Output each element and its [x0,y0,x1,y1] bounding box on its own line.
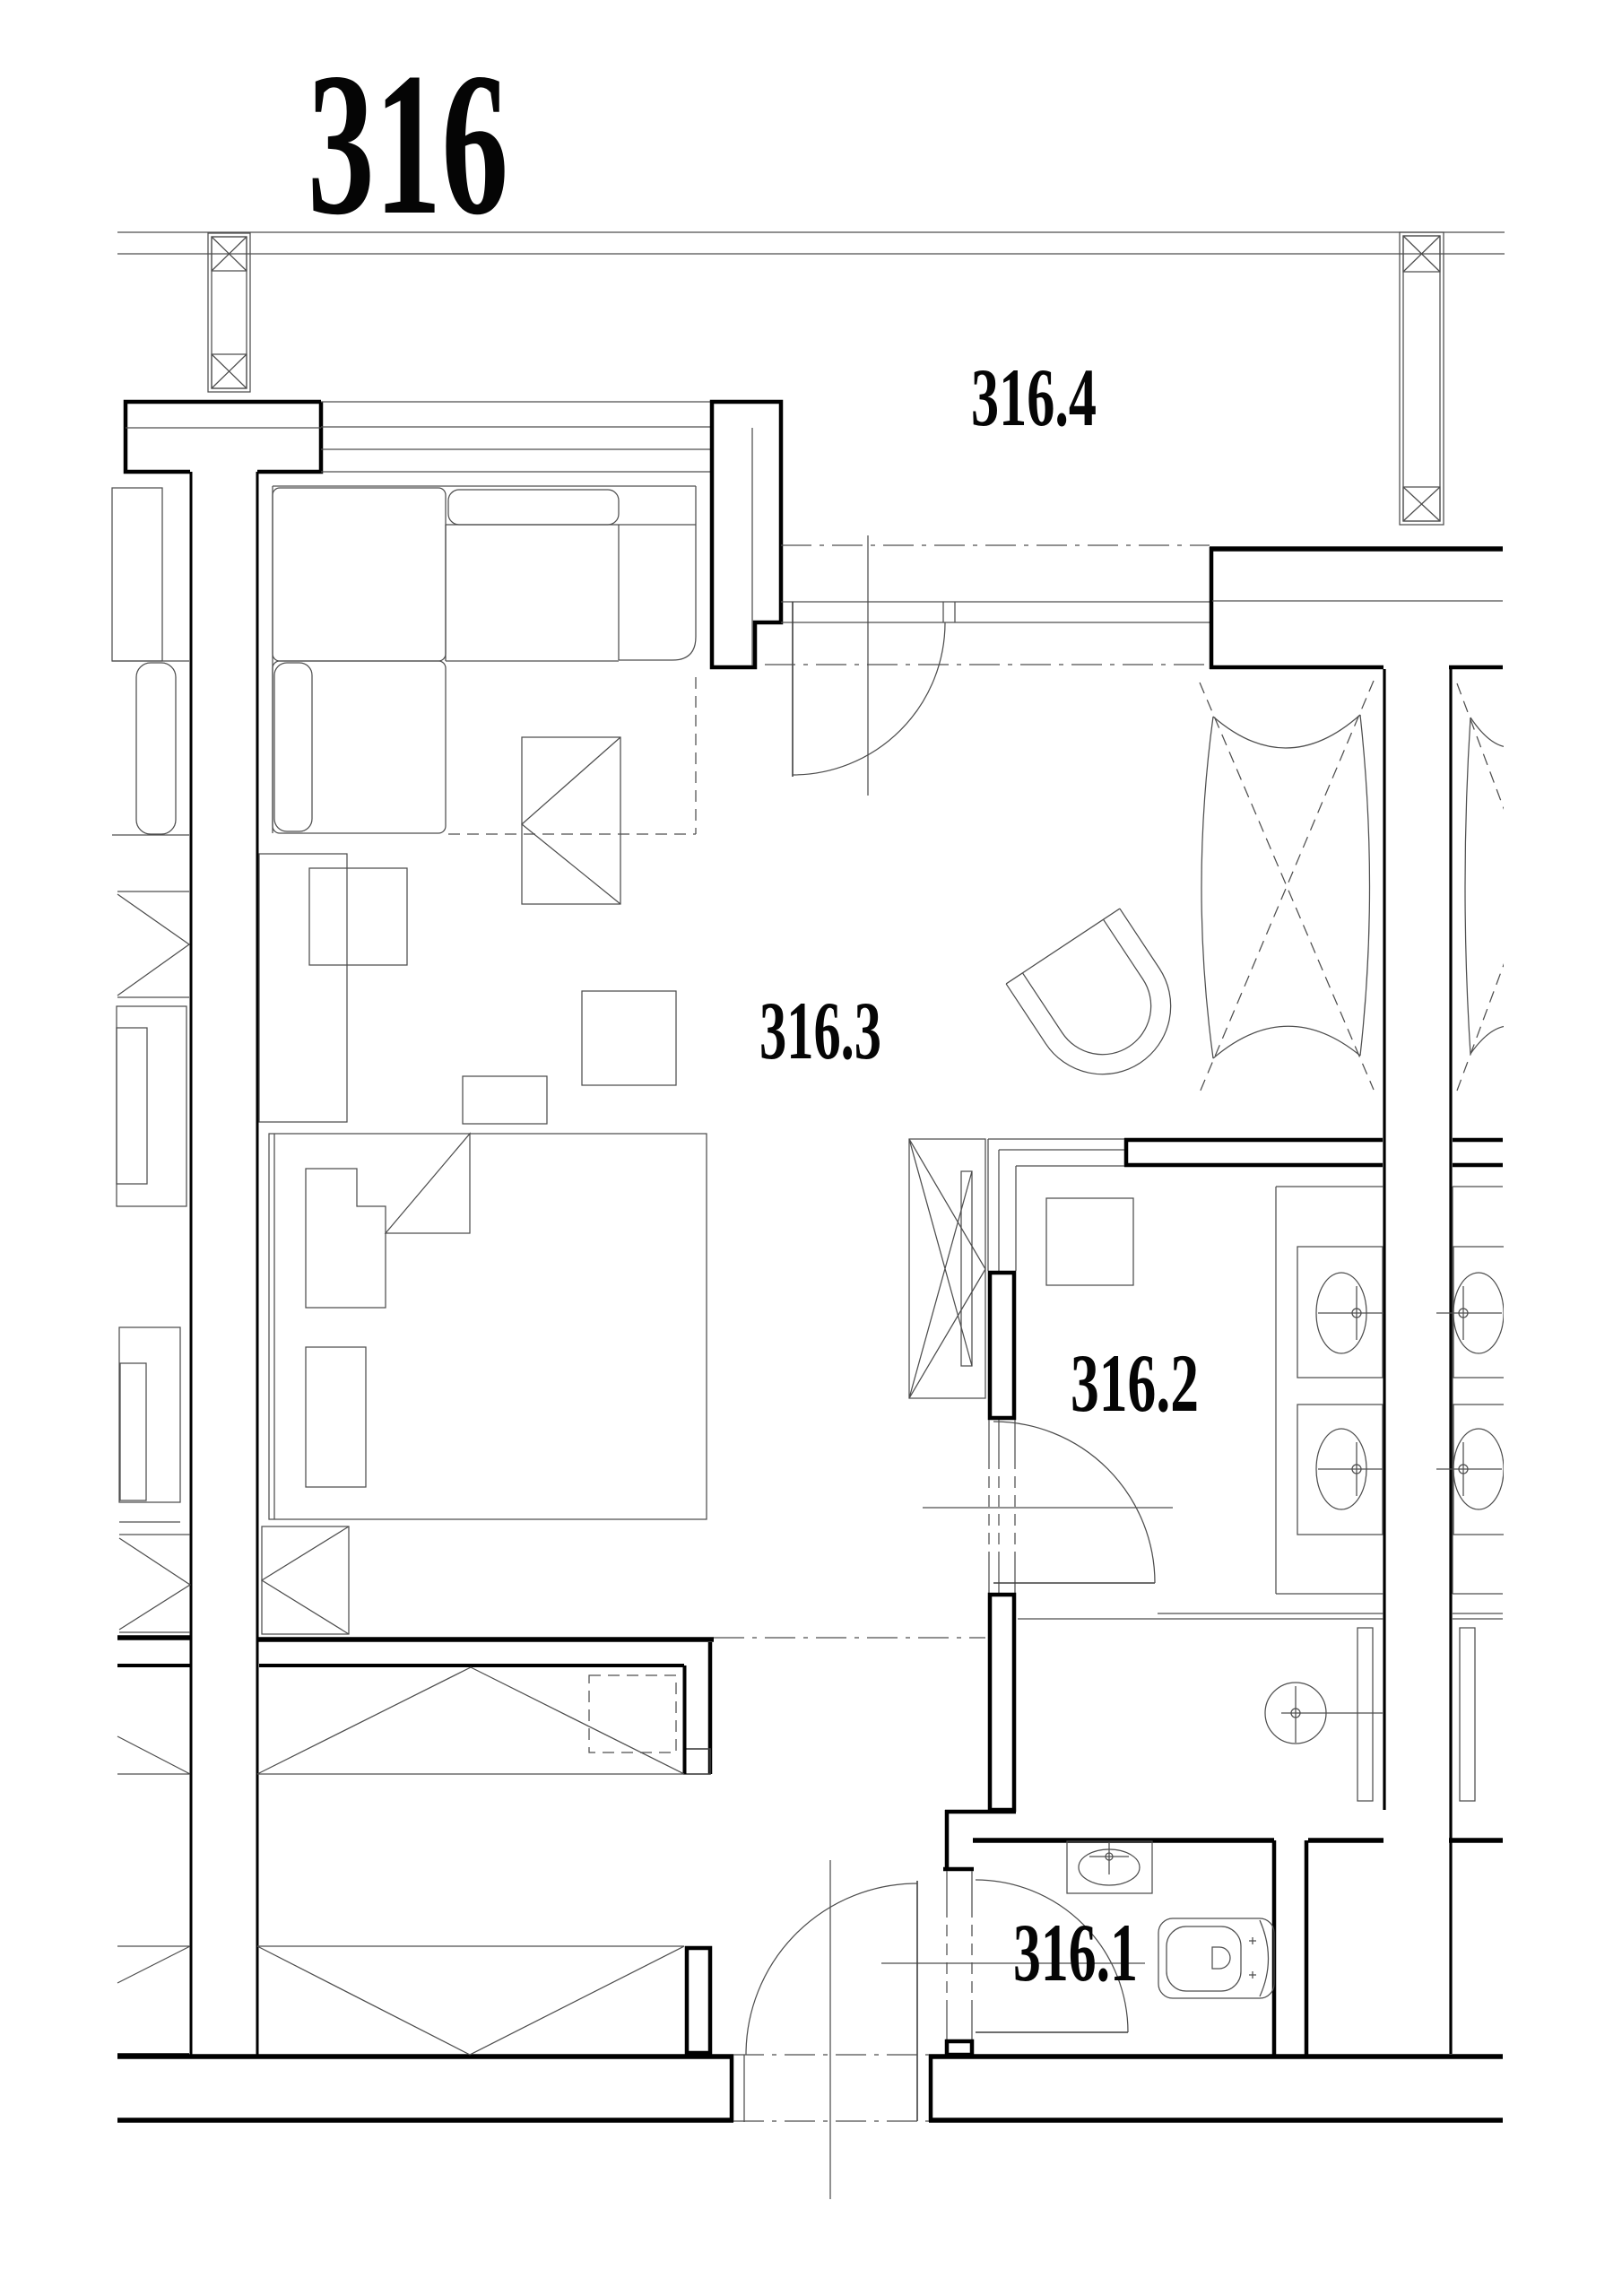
svg-text:316.1: 316.1 [1013,1907,1138,1998]
svg-text:316.4: 316.4 [971,352,1097,443]
svg-text:316.3: 316.3 [759,985,881,1076]
svg-text:316.2: 316.2 [1071,1337,1199,1429]
svg-text:316: 316 [308,31,508,257]
